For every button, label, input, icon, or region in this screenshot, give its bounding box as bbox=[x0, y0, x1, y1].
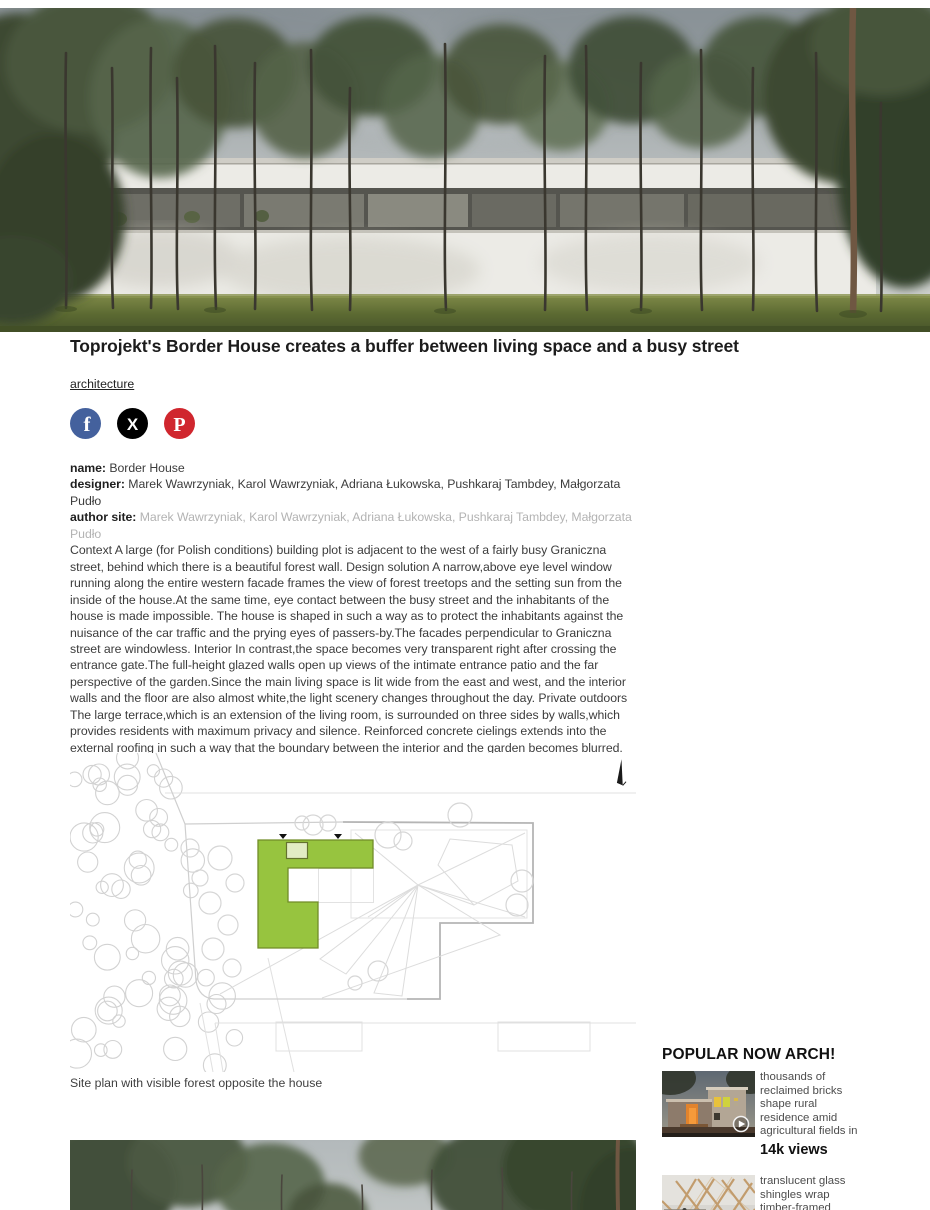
x-share-button[interactable]: X bbox=[117, 408, 148, 439]
sidebar-heading: POPULAR NOW ARCH! bbox=[662, 1046, 868, 1064]
site-plan-image bbox=[70, 753, 636, 1072]
meta-designer-label: designer: bbox=[70, 477, 125, 491]
meta-name-value: Border House bbox=[109, 461, 184, 475]
popular-item-1-views: 14k views bbox=[760, 1142, 868, 1158]
second-article-image bbox=[70, 1140, 636, 1210]
popular-now-sidebar: POPULAR NOW ARCH! bbox=[662, 1046, 868, 1210]
hero-render-house-among-birches bbox=[0, 8, 930, 332]
timber-lattice-thumbnail bbox=[662, 1175, 755, 1210]
meta-designer-value: Marek Wawrzyniak, Karol Wawrzyniak, Adri… bbox=[70, 477, 620, 507]
svg-text:P: P bbox=[173, 414, 185, 436]
meta-designer: designer: Marek Wawrzyniak, Karol Wawrzy… bbox=[70, 476, 639, 509]
article-body: name: Border House designer: Marek Wawrz… bbox=[70, 460, 639, 773]
popular-item-1[interactable]: thousands of reclaimed bricks shape rura… bbox=[662, 1071, 868, 1158]
facebook-icon: f bbox=[70, 408, 101, 439]
patio-square bbox=[287, 843, 308, 859]
x-icon: X bbox=[117, 408, 148, 439]
author-site-link[interactable]: Marek Wawrzyniak, Karol Wawrzyniak, Adri… bbox=[70, 510, 632, 540]
article-paragraph: Context A large (for Polish conditions) … bbox=[70, 542, 639, 772]
hero-image bbox=[0, 8, 930, 332]
category-link-architecture[interactable]: architecture bbox=[70, 377, 134, 391]
meta-name-label: name: bbox=[70, 461, 106, 475]
facebook-share-button[interactable]: f bbox=[70, 408, 101, 439]
meta-name: name: Border House bbox=[70, 460, 639, 476]
popular-item-1-thumbnail[interactable] bbox=[662, 1071, 755, 1137]
svg-text:f: f bbox=[84, 412, 92, 436]
play-icon bbox=[734, 1117, 749, 1132]
popular-item-2-title[interactable]: translucent glass shingles wrap timber-f… bbox=[760, 1175, 868, 1210]
article-page: Toprojekt's Border House creates a buffe… bbox=[0, 0, 930, 1210]
pinterest-share-button[interactable]: P bbox=[164, 408, 195, 439]
popular-item-2-thumbnail[interactable] bbox=[662, 1175, 755, 1210]
dusk-brick-house-thumbnail bbox=[662, 1071, 755, 1137]
tree-line-render bbox=[70, 1140, 636, 1210]
popular-item-1-title[interactable]: thousands of reclaimed bricks shape rura… bbox=[760, 1071, 868, 1139]
meta-author-site: author site: Marek Wawrzyniak, Karol Waw… bbox=[70, 509, 639, 542]
pinterest-icon: P bbox=[164, 408, 195, 439]
meta-author-site-label: author site: bbox=[70, 510, 136, 524]
popular-item-2[interactable]: translucent glass shingles wrap timber-f… bbox=[662, 1175, 868, 1210]
page-title: Toprojekt's Border House creates a buffe… bbox=[70, 336, 810, 357]
svg-text:X: X bbox=[127, 415, 139, 434]
social-share-row: f X P bbox=[70, 408, 195, 439]
image-caption: Site plan with visible forest opposite t… bbox=[70, 1076, 322, 1090]
